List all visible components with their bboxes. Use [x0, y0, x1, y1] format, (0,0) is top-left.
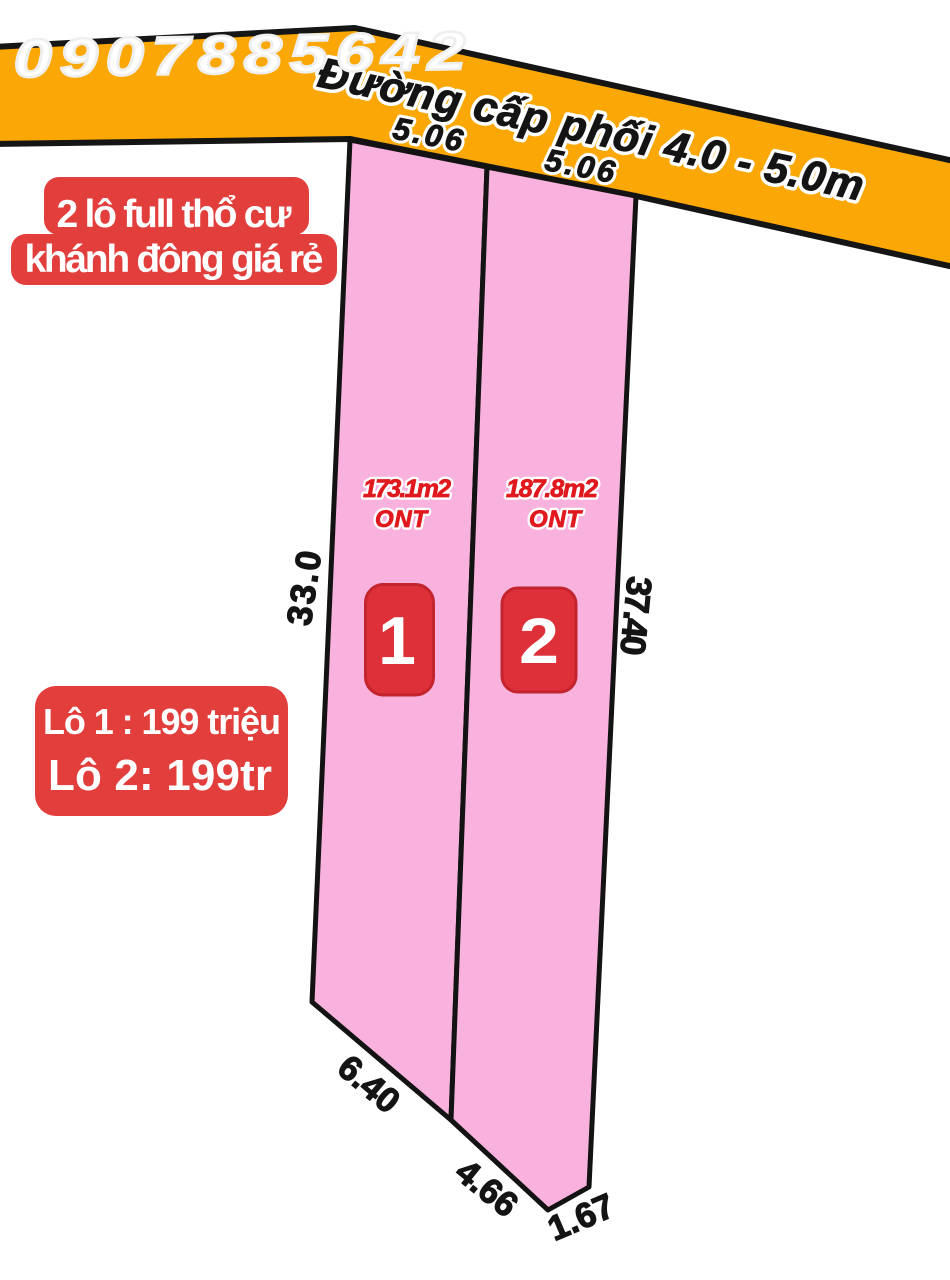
- svg-text:2 lô full thổ cư: 2 lô full thổ cư: [57, 193, 293, 236]
- svg-text:187.8m2: 187.8m2: [506, 475, 598, 503]
- svg-text:Lô 1 : 199 triệu: Lô 1 : 199 triệu: [43, 701, 281, 742]
- svg-text:ONT: ONT: [375, 506, 429, 533]
- svg-text:33.0: 33.0: [280, 548, 330, 628]
- svg-text:1: 1: [378, 603, 416, 679]
- svg-text:khánh đông giá rẻ: khánh đông giá rẻ: [25, 238, 324, 281]
- svg-text:ONT: ONT: [529, 506, 583, 533]
- svg-text:37.40: 37.40: [612, 575, 658, 657]
- svg-text:2: 2: [519, 605, 559, 677]
- svg-text:173.1m2: 173.1m2: [363, 475, 451, 503]
- svg-text:Lô 2: 199tr: Lô 2: 199tr: [48, 751, 272, 800]
